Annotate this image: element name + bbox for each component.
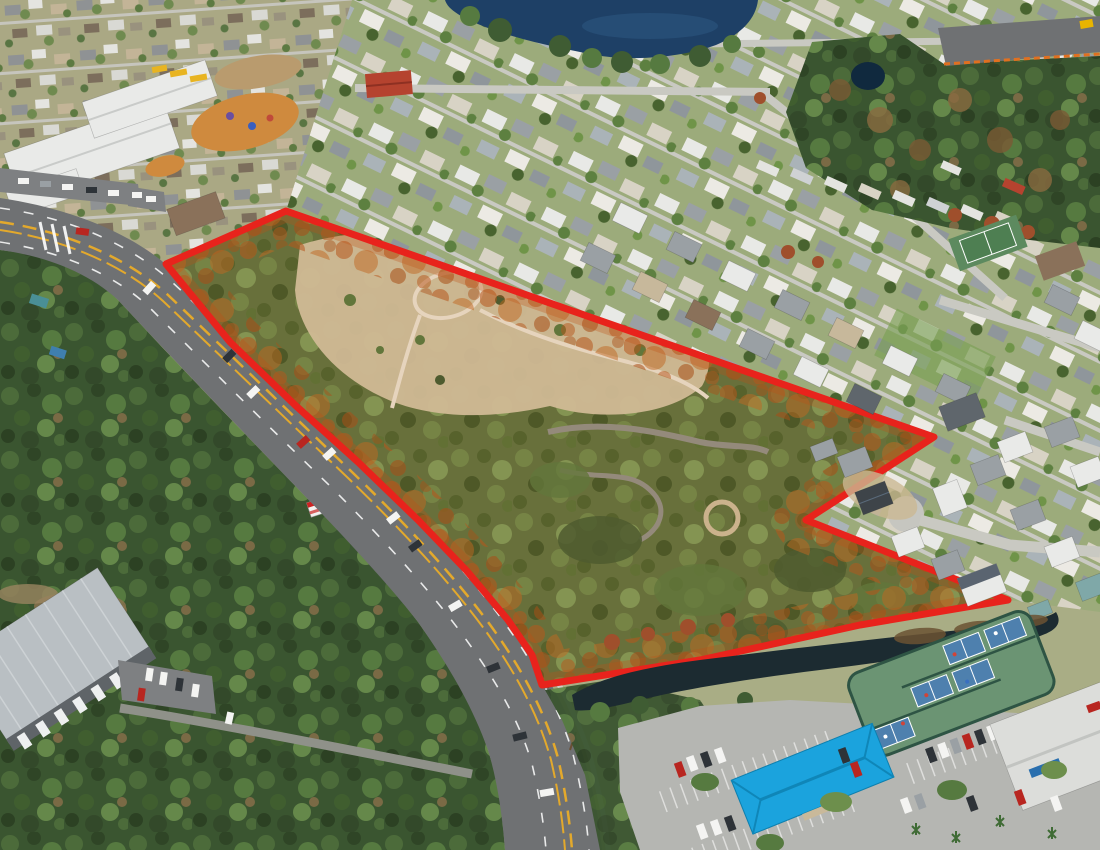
street [355,88,770,92]
parking-island-tree [1041,761,1067,779]
parking-island-tree [937,780,967,800]
crepe-myrtle-tree [781,245,795,259]
aerial-photo-svg [0,0,1100,850]
crepe-myrtle-tree [754,92,766,104]
parking-island-tree [820,792,852,812]
crepe-myrtle-tree [812,256,824,268]
aerial-photo [0,0,1100,850]
small-pond [851,62,885,90]
lake-sheen [582,13,718,39]
red-roof-building [365,70,413,98]
parking-island-tree [691,773,719,791]
